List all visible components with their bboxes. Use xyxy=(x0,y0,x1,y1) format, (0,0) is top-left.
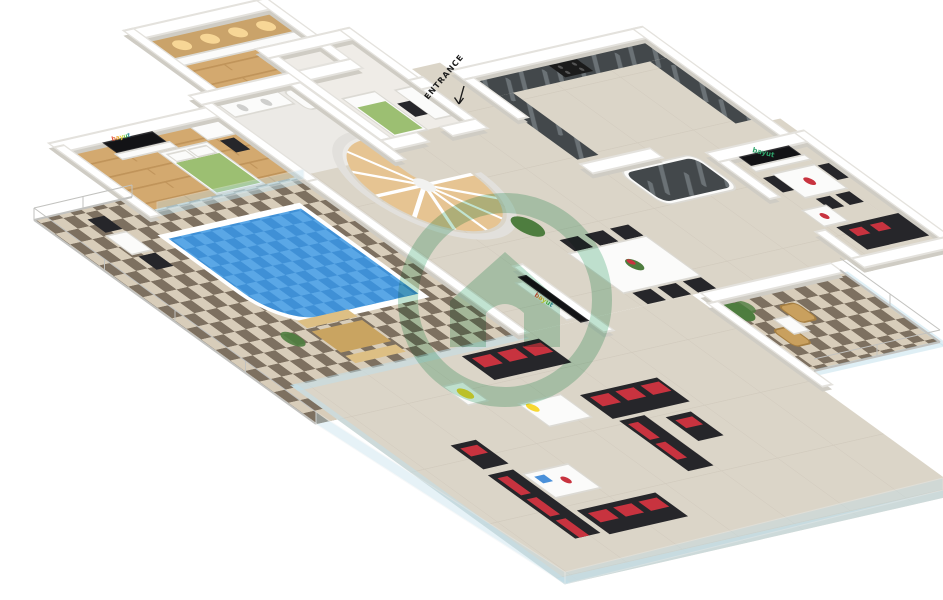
floor-plan-canvas: ENTRANCE bayut bayut bayut xyxy=(0,0,943,600)
isometric-floor-plan: ENTRANCE bayut bayut bayut xyxy=(0,0,943,600)
